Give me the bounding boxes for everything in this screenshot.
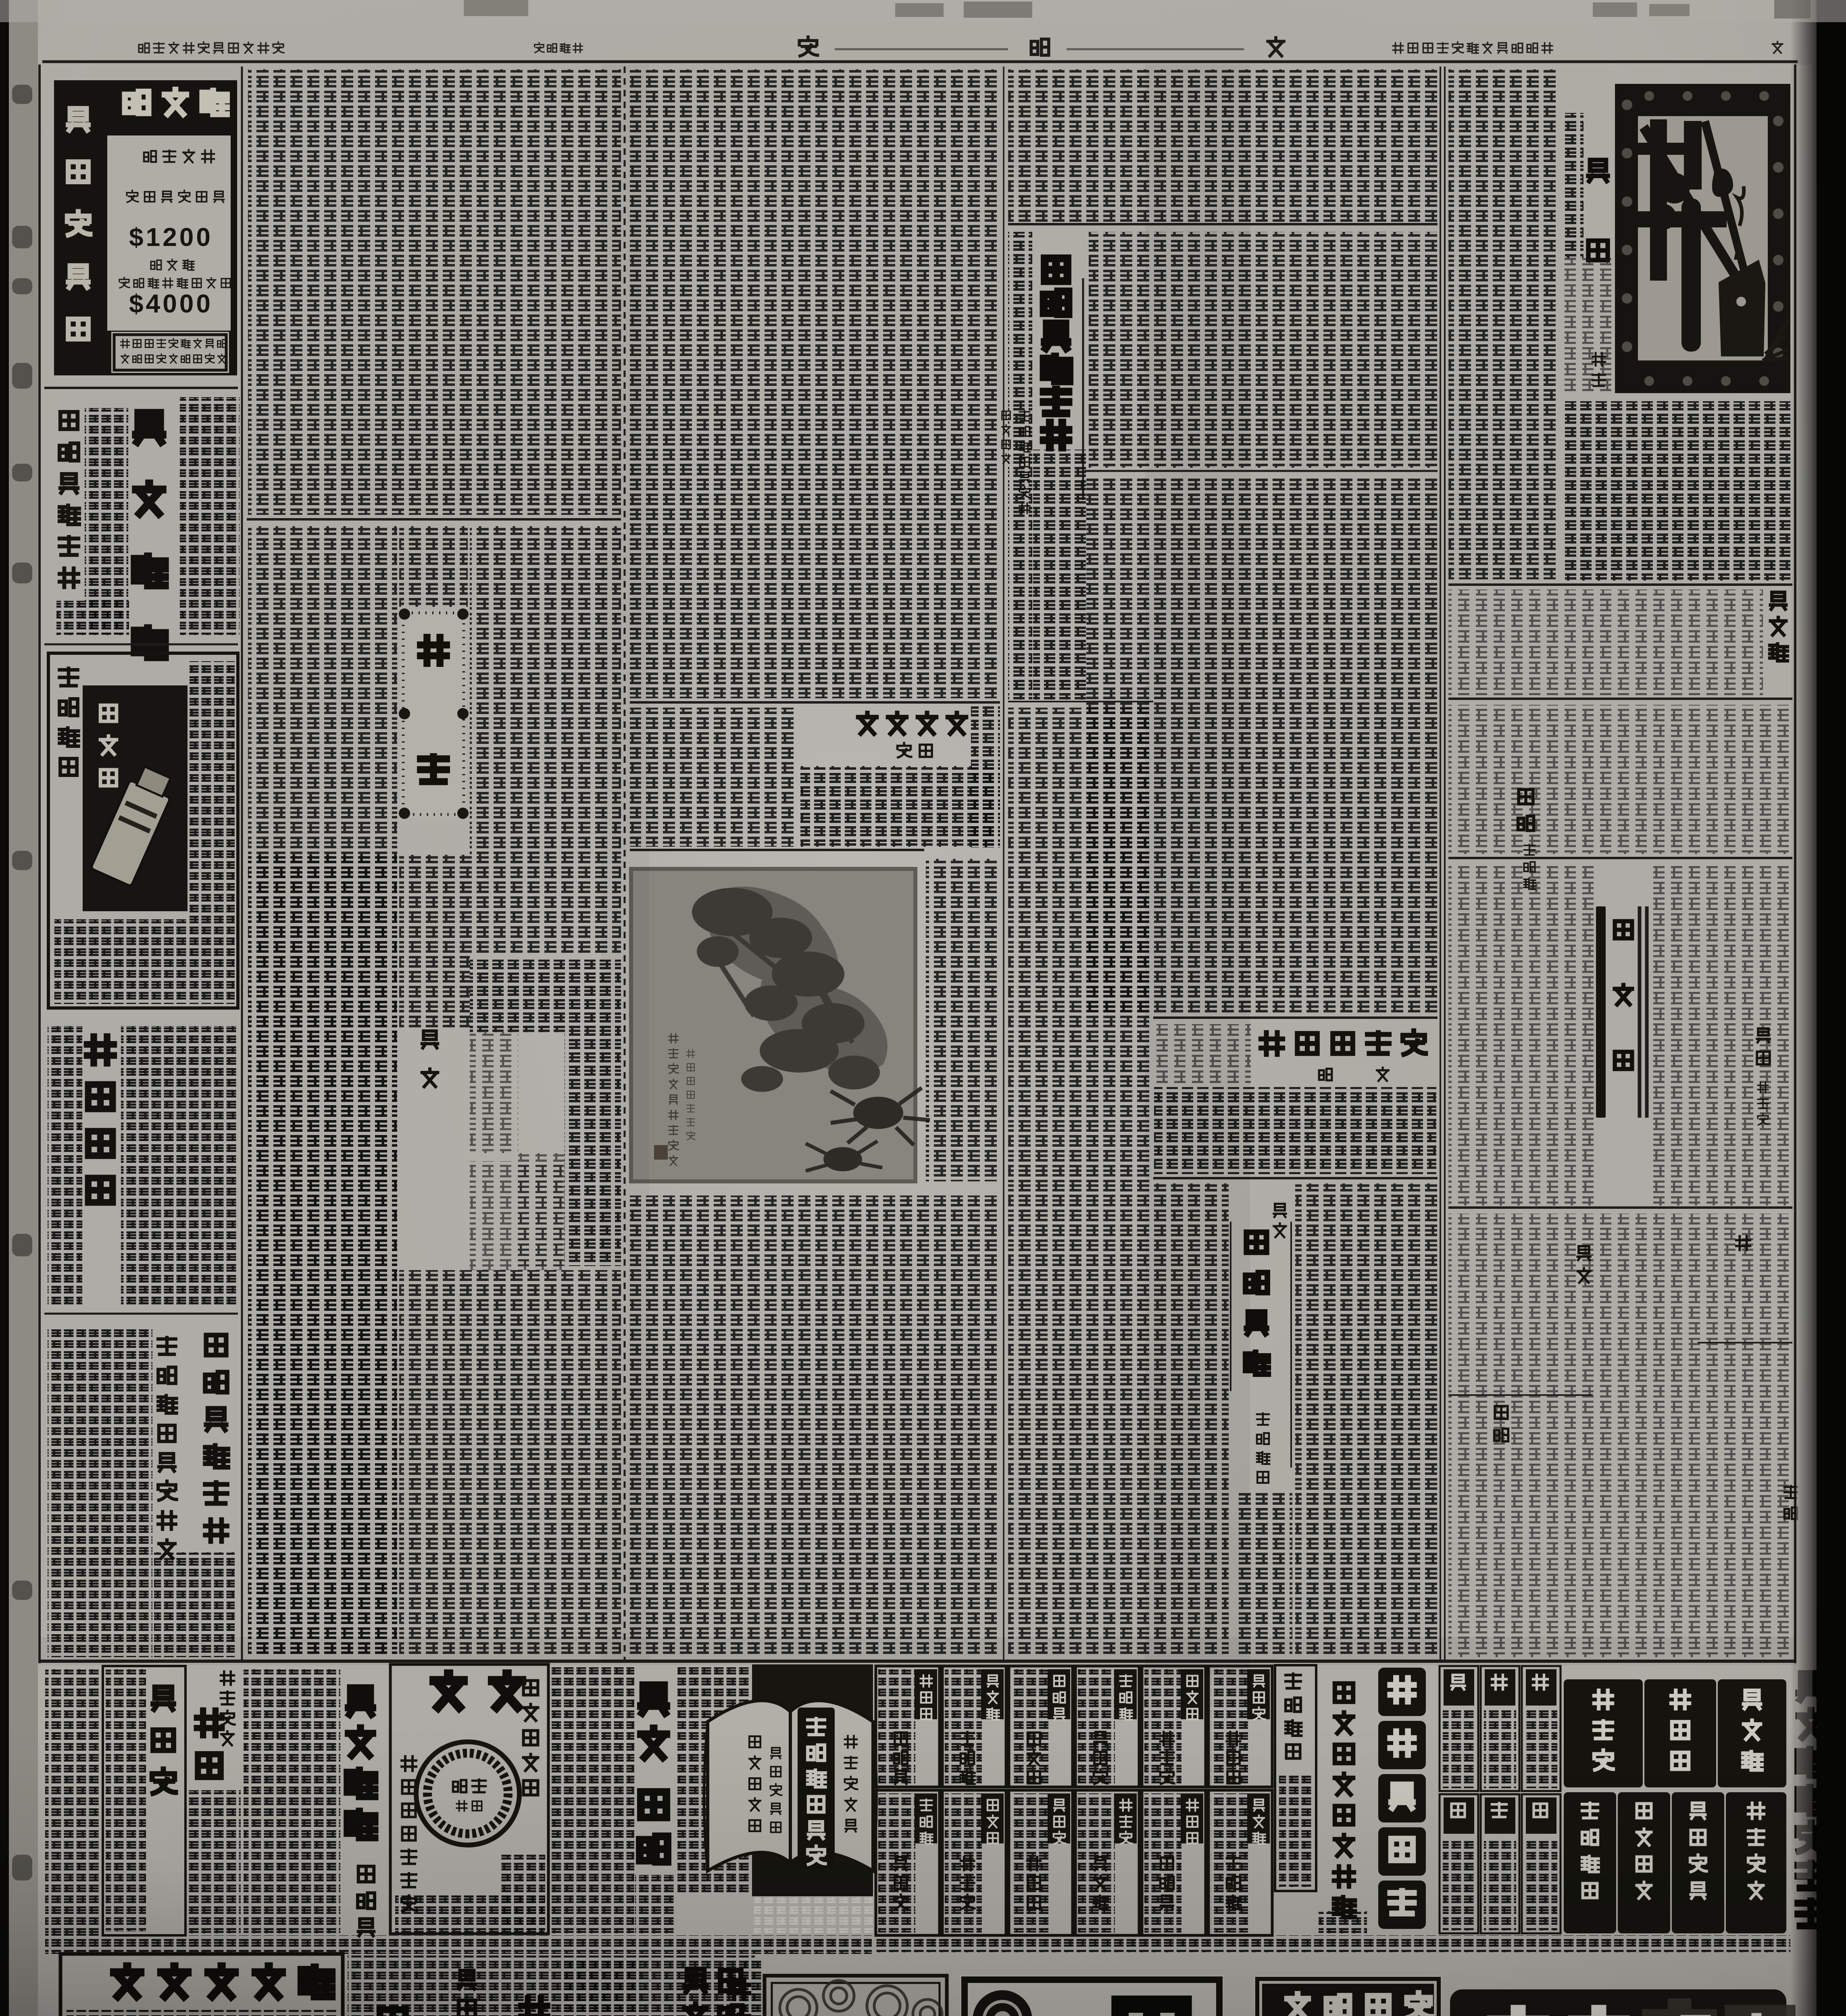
- svg-text:$4000: $4000: [129, 289, 213, 318]
- svg-text:$1200: $1200: [129, 223, 213, 252]
